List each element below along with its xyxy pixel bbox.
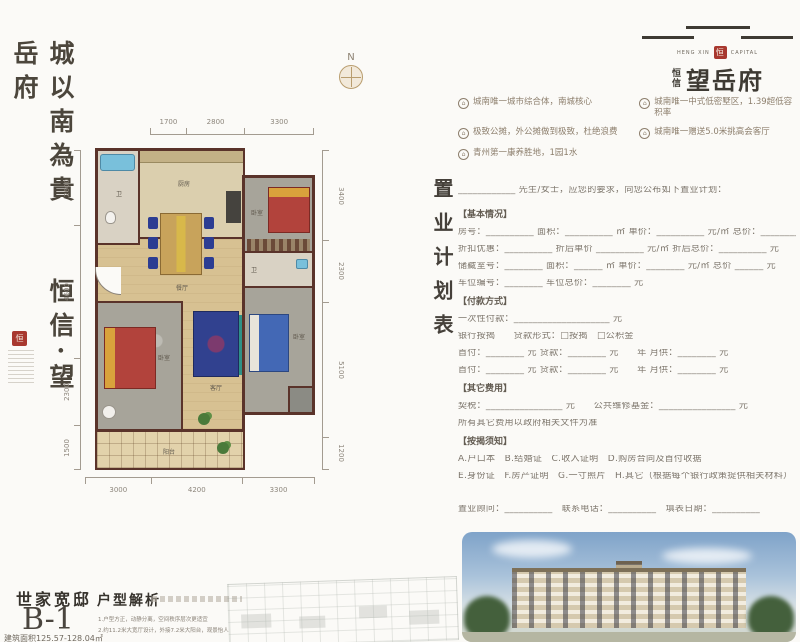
- dimension-segment: 2300: [322, 240, 329, 301]
- plant-icon: [198, 413, 210, 425]
- selling-point: ⌂极致公摊，外公摊做到极致，杜绝浪费: [458, 127, 639, 139]
- form-field-row[interactable]: 折扣优惠：__________ 折后单价 __________ 元/㎡ 折后总价…: [458, 245, 796, 254]
- living-rug: [193, 311, 239, 377]
- selling-point: ⌂城南唯一中式低密墅区，1.39超低容积率: [639, 97, 800, 118]
- dimension-segment: 3300: [242, 477, 315, 484]
- selling-points: ⌂城南唯一城市综合体，南城核心 ⌂城南唯一中式低密墅区，1.39超低容积率 ⌂极…: [458, 97, 800, 160]
- floorplan-main-block: 卫 厨房 餐厅 卧室 客厅: [95, 148, 245, 432]
- dimension-segment: 2600: [74, 150, 81, 225]
- dimension-segment: 2300: [74, 358, 81, 425]
- bullet-house-icon: ⌂: [639, 98, 650, 109]
- selling-point-text: 城南唯一中式低密墅区，1.39超低容积率: [654, 97, 800, 118]
- dining-chair: [148, 237, 158, 249]
- dimension-segment: 2800: [186, 128, 244, 135]
- unit-code: B-1: [22, 602, 74, 637]
- room-label: 卧室: [251, 208, 263, 217]
- form-field-row[interactable]: 首付：________ 元 贷款：________ 元 年 月供：_______…: [458, 366, 796, 375]
- balcony: 阳台: [95, 432, 245, 470]
- dining-chair: [148, 217, 158, 229]
- section-heading-other: 【其它费用】: [458, 385, 796, 394]
- form-field-row[interactable]: 契税：________________ 元 公共维修基金：___________…: [458, 402, 796, 411]
- selling-point: ⌂城南唯一城市综合体，南城核心: [458, 97, 639, 118]
- form-field-row[interactable]: 储藏室号：________ 面积：______ ㎡ 单价：________ 元/…: [458, 262, 796, 271]
- form-note-row: A.户口本 B.结婚证 C.收入证明 D.购房合同及首付收据: [458, 455, 796, 464]
- brochure-page: 城以南為貴 恒信·望岳府 恒 N 170028003300 3000420033…: [0, 0, 800, 642]
- ensuite-wc: [288, 386, 312, 412]
- logo-en-right: CAPITAL: [731, 50, 758, 56]
- brand-seal-icon: 恒: [12, 331, 27, 346]
- bedroom-left: 卧室: [98, 301, 183, 429]
- form-field-row-loan-type[interactable]: 银行按揭 贷款形式：□按揭 □公积金: [458, 332, 796, 341]
- selling-point-text: 极致公摊，外公摊做到极致，杜绝浪费: [473, 127, 618, 138]
- room-label: 卧室: [293, 332, 305, 341]
- dimension-segment: 1500: [74, 425, 81, 470]
- bullet-house-icon: ⌂: [458, 149, 469, 160]
- room-label: 卧室: [158, 353, 170, 362]
- unit-area-range: 建筑面积125.57-128.04㎡: [4, 633, 103, 642]
- building-rendering-photo: [462, 532, 796, 642]
- siteplan-sketch: [227, 576, 459, 642]
- dimension-segment: 3300: [244, 128, 314, 135]
- purchase-plan-form: ____________ 先生/女士，应您的要求，向您公布如下置业计划： 【基本…: [458, 186, 796, 522]
- form-note-row: E.身份证 F.房产证明 G.一寸照片 H.其它（根据每个银行政策提供相关材料）: [458, 472, 796, 481]
- compass-north-label: N: [334, 52, 368, 63]
- form-field-row[interactable]: 首付：________ 元 贷款：________ 元 年 月供：_______…: [458, 349, 796, 358]
- bathroom-1: 卫: [98, 151, 140, 245]
- toilet-icon: [105, 211, 116, 224]
- cloud-decor: [662, 548, 752, 564]
- brand-logo: HENG XIN 恒 CAPITAL 恒信 望岳府: [640, 24, 795, 96]
- bullet-house-icon: ⌂: [639, 128, 650, 139]
- logo-english-row: HENG XIN 恒 CAPITAL: [640, 46, 795, 59]
- form-intro-line: ____________ 先生/女士，应您的要求，向您公布如下置业计划：: [458, 186, 796, 195]
- dining-chair: [148, 257, 158, 269]
- dimension-segment: 1700: [150, 128, 186, 135]
- form-field-row[interactable]: 车位编号：________ 车位总价：________ 元: [458, 279, 796, 288]
- logo-chinese-row: 恒信 望岳府: [640, 61, 795, 96]
- dimension-segment: 1200: [322, 437, 329, 471]
- section-heading-notes: 【按揭须知】: [458, 438, 796, 447]
- dimension-segment: 3400: [322, 150, 329, 240]
- room-label: 客厅: [210, 383, 222, 392]
- dining-table: [160, 213, 202, 275]
- selling-point-text: 城南唯一赠送5.0米挑高会客厅: [654, 127, 770, 138]
- dimension-segment: 4600: [74, 225, 81, 358]
- section-heading-payment: 【付款方式】: [458, 298, 796, 307]
- entry-door-icon: [95, 267, 121, 295]
- bedroom-right: 卧室: [245, 288, 312, 412]
- bed-icon: [249, 314, 289, 372]
- dining-chair: [204, 237, 214, 249]
- building-facade: [512, 568, 746, 628]
- floorplan: 卫 厨房 餐厅 卧室 客厅: [95, 148, 315, 470]
- logo-seal-icon: 恒: [714, 46, 727, 59]
- room-label: 卫: [116, 189, 122, 198]
- kitchen-counter: [140, 151, 243, 163]
- form-vertical-title: 置业计划表: [428, 178, 457, 348]
- selling-point-text: 城南唯一城市综合体，南城核心: [473, 97, 592, 108]
- form-footer-row[interactable]: 置业顾问：__________ 联系电话：__________ 填表日期：___…: [458, 505, 796, 514]
- section-heading-basic: 【基本情况】: [458, 211, 796, 220]
- form-field-row[interactable]: 一次性付款：____________________ 元: [458, 315, 796, 324]
- compass: N: [334, 52, 368, 89]
- bullet-house-icon: ⌂: [458, 98, 469, 109]
- stove-icon: [226, 191, 241, 223]
- form-field-row[interactable]: 房号：__________ 面积：__________ ㎡ 单价：_______…: [458, 228, 796, 237]
- dims-right: 3400230051001200: [322, 150, 329, 470]
- selling-point: ⌂城南唯一赠送5.0米挑高会客厅: [639, 127, 800, 139]
- dining-chair: [204, 217, 214, 229]
- dimension-segment: 3000: [85, 477, 151, 484]
- washer-icon: [102, 405, 116, 419]
- selling-point: ⌂青州第一康养胜地，1园1水: [458, 148, 639, 160]
- bathtub-icon: [100, 154, 135, 171]
- bed-icon: [104, 327, 156, 389]
- bed-icon: [268, 187, 310, 233]
- dims-top: 170028003300: [150, 128, 314, 135]
- dining-chair: [204, 257, 214, 269]
- cloud-decor: [492, 540, 572, 558]
- room-label: 厨房: [178, 179, 190, 188]
- room-label: 餐厅: [176, 283, 188, 292]
- seal-caption-text: [8, 350, 34, 384]
- selling-point-text: 青州第一康养胜地，1园1水: [473, 148, 577, 159]
- room-label: 阳台: [163, 447, 175, 456]
- plant-icon: [217, 442, 229, 454]
- dimension-segment: 4200: [151, 477, 242, 484]
- logo-brand-large: 望岳府: [686, 61, 764, 96]
- form-note-row: 所有其它费用以政府相关文件为准: [458, 419, 796, 428]
- sink-icon: [296, 259, 308, 269]
- roofline-icon: [640, 24, 795, 46]
- room-label: 卫: [251, 265, 257, 274]
- bathroom-2: 卫: [245, 251, 312, 288]
- dims-bottom: 300042003300: [85, 477, 315, 484]
- dims-left: 2600460023001500: [74, 150, 81, 470]
- logo-brand-small: 恒信: [671, 69, 682, 89]
- wardrobe-icon: [247, 239, 310, 251]
- dimension-segment: 5100: [322, 302, 329, 437]
- logo-en-left: HENG XIN: [677, 50, 710, 56]
- bullet-house-icon: ⌂: [458, 128, 469, 139]
- compass-rose-icon: [339, 65, 363, 89]
- floorplan-right-block: 卧室 卫 卧室: [242, 175, 315, 415]
- ground-strip: [462, 632, 796, 642]
